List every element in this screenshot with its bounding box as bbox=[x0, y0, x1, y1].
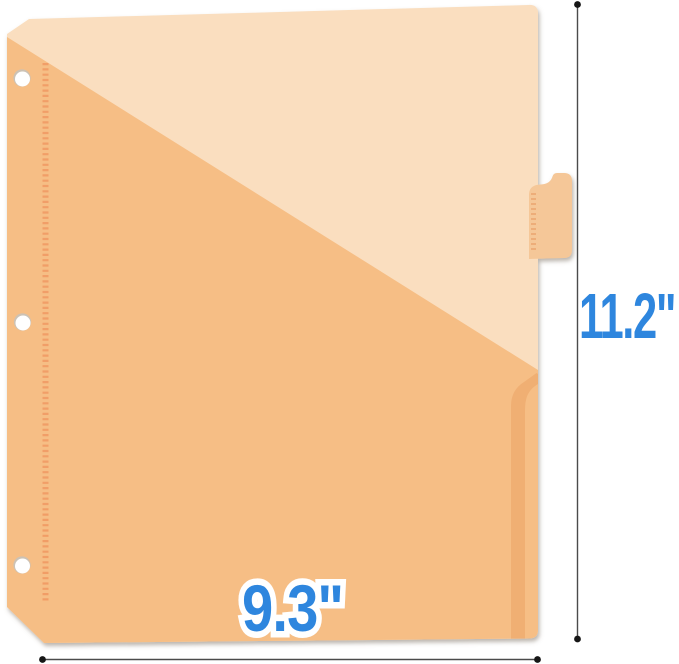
width-dimension bbox=[39, 656, 541, 663]
index-tab bbox=[529, 173, 572, 259]
punch-hole-bottom bbox=[13, 556, 30, 573]
width-label: 9.3" 9.3" bbox=[242, 575, 343, 641]
punch-hole-top bbox=[13, 69, 30, 86]
dimension-endpoint-dot bbox=[574, 636, 581, 643]
dimension-endpoint-dot bbox=[39, 656, 46, 663]
divider bbox=[7, 5, 572, 655]
product-image: 11.2" 9.3" 9.3" bbox=[0, 0, 679, 664]
divider-illustration bbox=[0, 0, 679, 664]
dimension-endpoint-dot bbox=[534, 656, 541, 663]
punch-hole-middle bbox=[14, 313, 31, 330]
dimension-endpoint-dot bbox=[574, 1, 581, 8]
width-label-text: 9.3" bbox=[242, 571, 343, 645]
height-label: 11.2" bbox=[579, 284, 675, 348]
